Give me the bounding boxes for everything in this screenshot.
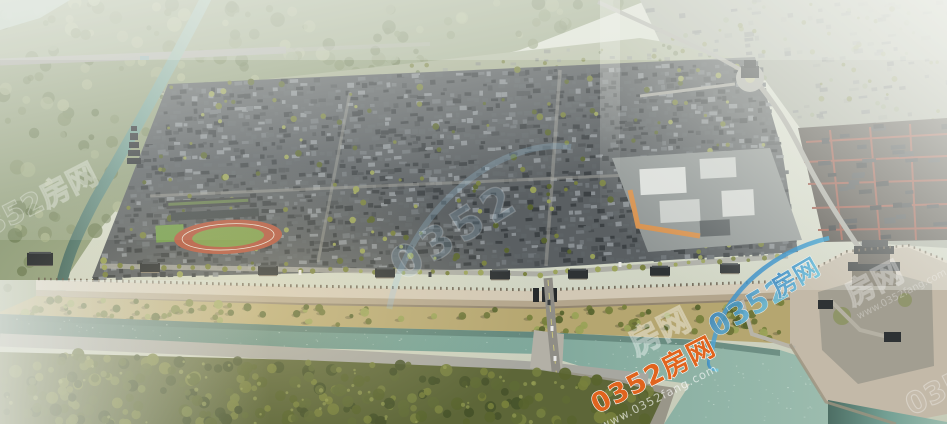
bank-tree — [605, 306, 613, 314]
water-glint — [633, 355, 634, 356]
water-glint — [750, 398, 751, 399]
courtyard-roof — [522, 253, 529, 258]
tree-canopy — [484, 412, 495, 423]
crenel-tooth — [566, 288, 568, 291]
water-glint — [738, 372, 739, 373]
wall-tower-ridge — [570, 269, 586, 271]
courtyard-roof — [571, 261, 577, 265]
tree-highlight — [560, 385, 564, 389]
tree-canopy — [535, 393, 544, 402]
courtyard-roof — [531, 240, 539, 244]
water-glint — [708, 401, 710, 402]
courtyard-roof — [582, 246, 587, 249]
water-glint — [588, 363, 590, 364]
water-glint — [620, 340, 621, 341]
water-glint — [724, 391, 725, 392]
street-tree — [595, 266, 601, 272]
water-glint — [808, 379, 809, 380]
water-glint — [764, 420, 766, 421]
water-glint — [620, 347, 621, 348]
crenel-tooth — [578, 287, 580, 290]
water-glint — [718, 391, 719, 392]
water-glint — [624, 368, 625, 369]
water-glint — [811, 408, 812, 409]
bank-tree — [572, 312, 579, 319]
water-glint — [809, 407, 811, 408]
car — [551, 326, 554, 331]
fortress-pavilion — [884, 332, 901, 342]
crenel-tooth — [560, 288, 562, 291]
courtyard-roof — [580, 240, 584, 244]
water-glint — [768, 370, 769, 371]
water-glint — [679, 415, 680, 416]
crenel-tooth — [596, 286, 598, 289]
water-glint — [742, 373, 744, 374]
street-tree — [537, 273, 543, 279]
tree-canopy — [591, 374, 602, 385]
crenel-tooth — [584, 287, 586, 290]
courtyard-roof — [577, 258, 583, 263]
water-glint — [575, 361, 576, 362]
courtyard-roof — [527, 260, 533, 263]
water-glint — [701, 384, 702, 385]
car — [554, 356, 557, 361]
water-glint — [809, 384, 811, 385]
water-glint — [762, 363, 764, 364]
courtyard-roof — [526, 241, 531, 244]
water-glint — [805, 383, 806, 384]
tree-highlight — [519, 395, 523, 399]
crenel-tooth — [572, 287, 574, 290]
tree-canopy — [488, 403, 494, 409]
water-glint — [778, 402, 779, 403]
courtyard-roof — [534, 261, 539, 266]
mist-southwest — [0, 280, 270, 424]
bank-tree — [640, 312, 645, 317]
water-glint — [736, 366, 737, 367]
water-glint — [805, 383, 806, 384]
courtyard-roof — [522, 248, 527, 252]
courtyard-roof — [563, 258, 571, 263]
water-glint — [723, 348, 724, 349]
water-glint — [793, 391, 794, 392]
water-glint — [759, 380, 760, 381]
water-glint — [717, 385, 719, 386]
water-glint — [807, 408, 808, 409]
bank-tree — [575, 326, 584, 335]
tree-canopy — [562, 396, 570, 404]
courtyard-roof — [534, 254, 540, 258]
scene-canvas: 0352 0352 房网 0352房网 房网 房网 www.0352fang.c… — [0, 0, 947, 424]
water-glint — [595, 340, 597, 341]
bank-tree — [618, 322, 624, 328]
water-glint — [768, 402, 770, 403]
courtyard-roof — [559, 252, 566, 257]
water-glint — [728, 400, 730, 401]
tree-canopy — [532, 367, 541, 376]
tree-highlight — [575, 386, 578, 389]
water-glint — [743, 377, 744, 378]
wall-tower-roof — [568, 270, 588, 279]
horizon-haze — [0, 0, 947, 60]
tree-canopy — [578, 380, 588, 390]
tree-canopy — [536, 409, 545, 418]
water-glint — [714, 380, 715, 381]
tree-highlight — [523, 382, 527, 386]
courtyard-roof — [591, 246, 598, 251]
courtyard-roof — [577, 244, 583, 249]
water-glint — [804, 417, 806, 418]
water-glint — [764, 416, 765, 417]
aerial-rendering-ancient-walled-city: 0352 0352 房网 0352房网 房网 房网 www.0352fang.c… — [0, 0, 947, 424]
city-tree — [567, 249, 571, 253]
water-glint — [606, 364, 607, 365]
water-glint — [734, 385, 735, 386]
water-glint — [790, 408, 791, 409]
city-tree — [590, 254, 595, 259]
water-glint — [777, 398, 778, 399]
water-glint — [787, 387, 789, 388]
tree-highlight — [531, 381, 535, 385]
courtyard-roof — [554, 247, 558, 250]
water-glint — [766, 389, 768, 390]
water-glint — [728, 407, 729, 408]
bank-tree — [777, 330, 781, 334]
courtyard-roof — [595, 256, 599, 259]
tree-canopy — [501, 388, 509, 396]
bank-tree — [622, 305, 627, 310]
water-glint — [800, 376, 801, 377]
tree-canopy — [524, 395, 533, 404]
tree-canopy — [509, 381, 520, 392]
courtyard-roof — [537, 247, 544, 251]
water-glint — [705, 417, 706, 418]
tree-highlight — [529, 420, 533, 424]
street-tree — [553, 270, 558, 275]
bank-tree — [588, 308, 595, 315]
courtyard-roof — [581, 251, 585, 256]
water-glint — [791, 367, 792, 368]
water-glint — [713, 404, 714, 405]
tree-canopy — [501, 400, 509, 408]
courtyard-roof — [532, 245, 539, 248]
tree-canopy — [559, 368, 571, 380]
tree-highlight — [512, 413, 516, 417]
courtyard-roof — [568, 243, 574, 247]
water-glint — [772, 393, 773, 394]
water-glint — [612, 354, 613, 355]
bank-tree — [695, 305, 701, 311]
water-glint — [786, 408, 787, 409]
crenel-tooth — [590, 287, 592, 290]
tree-highlight — [554, 381, 557, 384]
car — [548, 300, 551, 305]
water-glint — [627, 356, 628, 357]
bank-tree — [560, 311, 565, 316]
fortress-pavilion — [818, 300, 833, 309]
bank-tree — [646, 309, 652, 315]
